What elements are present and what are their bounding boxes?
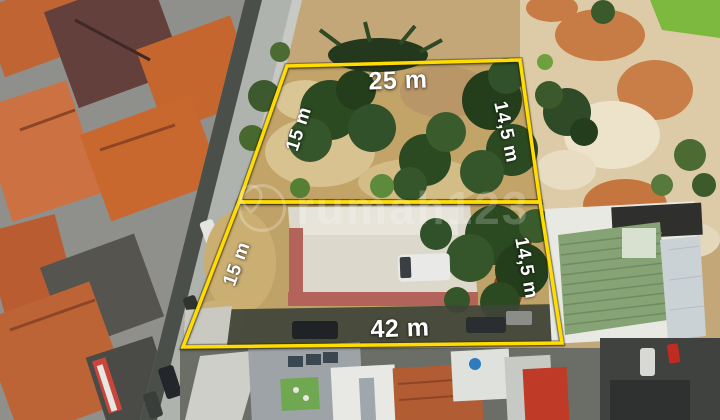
car [292,321,338,339]
aerial-photo: rumah123 25 m 15 m 14,5 m 15 m 14,5 m 42… [0,0,720,420]
lawn [280,377,320,411]
car [466,317,506,333]
measurement-back-top: 25 m [368,67,428,94]
car [640,348,655,376]
bottom-street-buildings [180,338,720,420]
blue-dome [469,358,481,370]
measurement-front-bottom: 42 m [370,315,430,342]
shed [506,311,532,325]
warehouse-green-roof [545,201,706,344]
aerial-scene [0,0,720,420]
